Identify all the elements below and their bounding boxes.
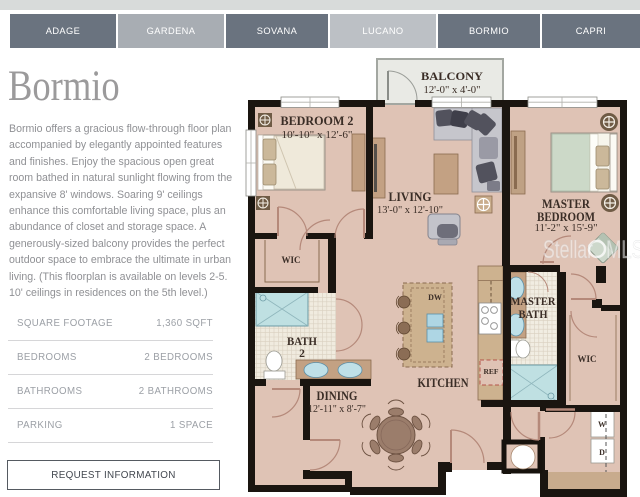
svg-text:BEDROOM 2: BEDROOM 2 <box>281 114 354 128</box>
svg-text:BATH: BATH <box>287 336 317 348</box>
svg-text:KITCHEN: KITCHEN <box>418 376 469 390</box>
svg-text:BATH: BATH <box>519 309 548 321</box>
svg-text:2: 2 <box>299 348 305 360</box>
svg-text:BALCONY: BALCONY <box>421 69 483 83</box>
svg-text:10'-10" x 12'-6": 10'-10" x 12'-6" <box>282 130 353 141</box>
svg-text:W: W <box>598 420 606 429</box>
svg-text:DW: DW <box>428 293 442 302</box>
svg-text:MASTER: MASTER <box>542 197 591 211</box>
svg-text:Stellar: Stellar <box>543 236 593 264</box>
svg-text:MLS: MLS <box>606 236 640 264</box>
svg-text:12'-0" x 4'-0": 12'-0" x 4'-0" <box>424 85 481 96</box>
svg-text:WIC: WIC <box>577 354 596 364</box>
svg-text:13'-0" x 12'-10": 13'-0" x 12'-10" <box>377 205 443 216</box>
svg-text:REF: REF <box>484 367 499 376</box>
svg-text:11'-2" x 15'-9": 11'-2" x 15'-9" <box>535 223 598 234</box>
svg-text:D: D <box>599 448 605 457</box>
svg-text:12'-11" x 8'-7": 12'-11" x 8'-7" <box>308 404 366 415</box>
svg-text:LIVING: LIVING <box>389 190 432 204</box>
svg-text:DINING: DINING <box>317 389 358 403</box>
svg-text:MASTER: MASTER <box>511 296 557 308</box>
svg-text:WIC: WIC <box>281 255 300 265</box>
svg-text:BEDROOM: BEDROOM <box>537 210 595 224</box>
